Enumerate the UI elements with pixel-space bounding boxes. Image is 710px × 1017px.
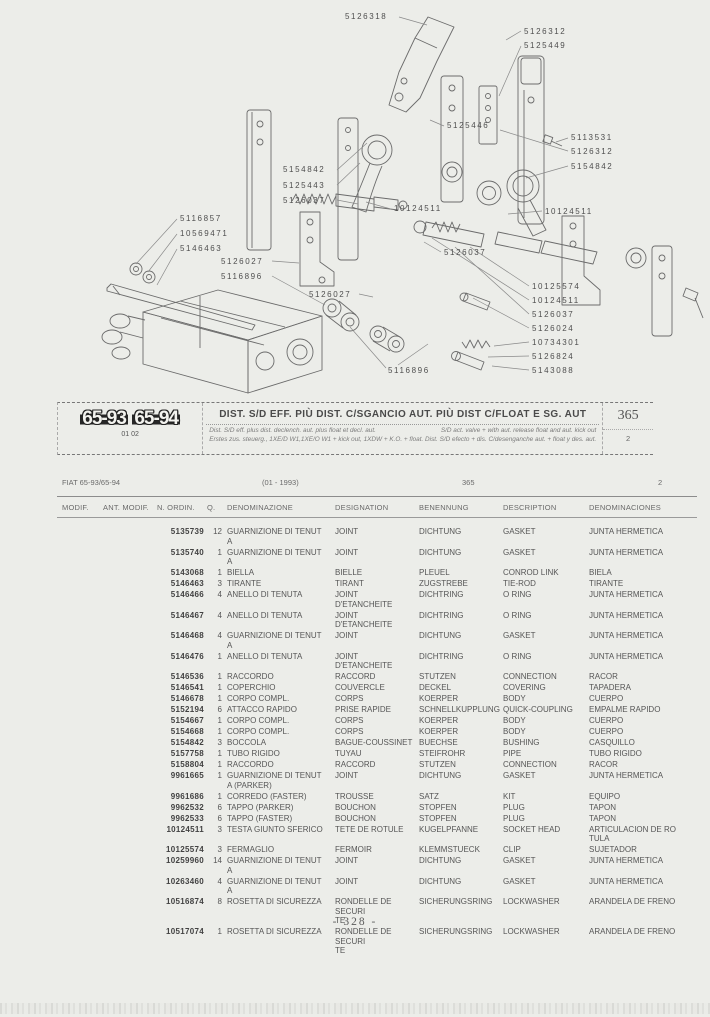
cell-denominaciones: JUNTA HERMETICA (589, 631, 686, 650)
parts-table-header: MODIF.ANT. MODIF.N. ORDIN.Q.DENOMINAZION… (62, 503, 686, 512)
part-number-label: 5146463 (180, 244, 222, 253)
cell-denominaciones: JUNTA HERMETICA (589, 652, 686, 671)
cell-quantity: 3 (207, 845, 227, 855)
column-header: DENOMINACIONES (589, 503, 686, 512)
cell-description: GASKET (503, 631, 589, 650)
cell-denominaciones: BIELA (589, 568, 686, 578)
cell-quantity: 1 (207, 727, 227, 737)
cell-modif (62, 814, 103, 824)
cell-benennung: PLEUEL (419, 568, 503, 578)
part-number-label: 5126824 (532, 352, 574, 361)
model-badge-65-94: 65-94 (132, 408, 180, 430)
cell-quantity: 1 (207, 927, 227, 956)
cell-quantity: 1 (207, 760, 227, 770)
cell-benennung: KUGELPFANNE (419, 825, 503, 844)
horizontal-rule-under-header (57, 517, 697, 518)
cell-description: BODY (503, 727, 589, 737)
cell-modif (62, 631, 103, 650)
cell-designation: RONDELLE DE SECURI TE (335, 927, 419, 956)
cell-ant-modif (103, 705, 157, 715)
cell-denominazione: TAPPO (FASTER) (227, 814, 335, 824)
cell-denominazione: FERMAGLIO (227, 845, 335, 855)
cell-ant-modif (103, 652, 157, 671)
badge-subtext: 01 02 (58, 431, 202, 438)
cell-part-number: 10125574 (157, 845, 207, 855)
cell-modif (62, 927, 103, 956)
cell-denominaciones: JUNTA HERMETICA (589, 877, 686, 896)
cell-denominaciones: TIRANTE (589, 579, 686, 589)
cell-designation: BAGUE-COUSSINET (335, 738, 419, 748)
table-row: 5154667 1 CORPO COMPL. CORPS KOERPER BOD… (62, 716, 686, 726)
cell-designation: JOINT D'ETANCHEITE (335, 611, 419, 630)
table-row: 5152194 6 ATTACCO RAPIDO PRISE RAPIDE SC… (62, 705, 686, 715)
page-number: - 328 - (0, 916, 710, 928)
cell-denominaciones: TUBO RIGIDO (589, 749, 686, 759)
cell-part-number: 5152194 (157, 705, 207, 715)
model-badges-cell: 65-93 65-94 01 02 (58, 403, 203, 454)
cell-benennung: BUECHSE (419, 738, 503, 748)
cell-quantity: 6 (207, 803, 227, 813)
cell-part-number: 10259960 (157, 856, 207, 875)
cell-benennung: DICHTUNG (419, 631, 503, 650)
cell-ant-modif (103, 548, 157, 567)
cell-denominazione: CORREDO (FASTER) (227, 792, 335, 802)
cell-designation: RACCORD (335, 672, 419, 682)
cell-benennung: STUTZEN (419, 672, 503, 682)
column-header: DESIGNATION (335, 503, 419, 512)
subtitle-english: S/D act. valve + with aut. release float… (441, 427, 596, 434)
cell-description: TIE-ROD (503, 579, 589, 589)
cell-modif (62, 611, 103, 630)
cell-modif (62, 672, 103, 682)
cell-designation: BIELLE (335, 568, 419, 578)
section-header-band: 65-93 65-94 01 02 DIST. S/D EFF. PIÙ DIS… (57, 402, 653, 455)
cell-part-number: 5146476 (157, 652, 207, 671)
cell-designation: CORPS (335, 716, 419, 726)
cell-ant-modif (103, 760, 157, 770)
cell-part-number: 5154668 (157, 727, 207, 737)
cell-denominaciones: TAPADERA (589, 683, 686, 693)
cell-designation: RACCORD (335, 760, 419, 770)
cell-modif (62, 705, 103, 715)
cell-denominazione: ANELLO DI TENUTA (227, 590, 335, 609)
table-row: 5157758 1 TUBO RIGIDO TUYAU STEIFROHR PI… (62, 749, 686, 759)
cell-quantity: 1 (207, 771, 227, 790)
part-number-label: 5126037 (283, 196, 325, 205)
cell-denominazione: ANELLO DI TENUTA (227, 611, 335, 630)
cell-part-number: 9962533 (157, 814, 207, 824)
cell-part-number: 5157758 (157, 749, 207, 759)
cell-denominazione: CORPO COMPL. (227, 694, 335, 704)
cell-benennung: DICHTRING (419, 611, 503, 630)
cell-benennung: KOERPER (419, 716, 503, 726)
cell-modif (62, 590, 103, 609)
cell-benennung: KOERPER (419, 694, 503, 704)
table-row: 9962532 6 TAPPO (PARKER) BOUCHON STOPFEN… (62, 803, 686, 813)
table-row: 10125574 3 FERMAGLIO FERMOIR KLEMMSTUECK… (62, 845, 686, 855)
cell-denominaciones: CASQUILLO (589, 738, 686, 748)
cell-part-number: 5146467 (157, 611, 207, 630)
cell-benennung: DICHTUNG (419, 548, 503, 567)
page-ref-cell: 365 2 (602, 403, 653, 454)
part-number-label: 5125443 (283, 181, 325, 190)
cell-denominazione: GUARNIZIONE DI TENUT A (227, 877, 335, 896)
cell-denominaciones: CUERPO (589, 727, 686, 737)
sheet-number: 2 (603, 429, 653, 443)
cell-modif (62, 771, 103, 790)
date-reference: (01 - 1993) (262, 478, 299, 487)
cell-designation: BOUCHON (335, 803, 419, 813)
cell-part-number: 5146678 (157, 694, 207, 704)
cell-denominazione: GUARNIZIONE DI TENUT A (227, 527, 335, 546)
cell-quantity: 3 (207, 579, 227, 589)
cell-denominazione: TUBO RIGIDO (227, 749, 335, 759)
cell-denominazione: GUARNIZIONE DI TENUT A (PARKER) (227, 771, 335, 790)
cell-denominaciones: SUJETADOR (589, 845, 686, 855)
cell-quantity: 1 (207, 683, 227, 693)
cell-denominazione: CORPO COMPL. (227, 727, 335, 737)
cell-modif (62, 683, 103, 693)
cell-denominazione: COPERCHIO (227, 683, 335, 693)
part-number-label: 5125446 (447, 121, 489, 130)
cell-designation: JOINT (335, 527, 419, 546)
table-row: 5154842 3 BOCCOLA BAGUE-COUSSINET BUECHS… (62, 738, 686, 748)
table-row: 5146467 4 ANELLO DI TENUTA JOINT D'ETANC… (62, 611, 686, 630)
column-header: Q. (207, 503, 227, 512)
cell-denominazione: GUARNIZIONE DI TENUT A (227, 548, 335, 567)
column-header: MODIF. (62, 503, 103, 512)
cell-modif (62, 579, 103, 589)
cell-denominaciones: JUNTA HERMETICA (589, 611, 686, 630)
cell-denominazione: TESTA GIUNTO SFERICO (227, 825, 335, 844)
model-reference: FIAT 65-93/65-94 (62, 478, 120, 487)
table-row: 9962533 6 TAPPO (FASTER) BOUCHON STOPFEN… (62, 814, 686, 824)
cell-benennung: DICHTRING (419, 590, 503, 609)
cell-modif (62, 694, 103, 704)
part-number-label: 5154842 (571, 162, 613, 171)
cell-designation: COUVERCLE (335, 683, 419, 693)
cell-description: QUICK-COUPLING (503, 705, 589, 715)
cell-benennung: SICHERUNGSRING (419, 927, 503, 956)
cell-quantity: 1 (207, 652, 227, 671)
cell-denominaciones: ARANDELA DE FRENO (589, 927, 686, 956)
cell-ant-modif (103, 683, 157, 693)
cell-modif (62, 738, 103, 748)
diagram-drawing (0, 0, 710, 400)
cell-designation: TIRANT (335, 579, 419, 589)
cell-ant-modif (103, 825, 157, 844)
cell-modif (62, 825, 103, 844)
cell-quantity: 6 (207, 814, 227, 824)
part-number-label: 10124511 (545, 207, 593, 216)
cell-designation: JOINT (335, 631, 419, 650)
table-row: 10259960 14 GUARNIZIONE DI TENUT A JOINT… (62, 856, 686, 875)
model-badge-65-93: 65-93 (80, 408, 128, 430)
cell-denominaciones: JUNTA HERMETICA (589, 590, 686, 609)
part-number-label: 5126318 (345, 12, 387, 21)
cell-ant-modif (103, 845, 157, 855)
exploded-parts-diagram: 5126318512631251254495125446511353151263… (0, 0, 710, 400)
cell-denominaciones: EMPALME RAPIDO (589, 705, 686, 715)
cell-part-number: 5154842 (157, 738, 207, 748)
cell-ant-modif (103, 590, 157, 609)
model-badges: 65-93 65-94 (58, 408, 202, 430)
cell-benennung: ZUGSTREBE (419, 579, 503, 589)
part-number-label: 5125449 (524, 41, 566, 50)
cell-benennung: DICHTUNG (419, 527, 503, 546)
cell-description: COVERING (503, 683, 589, 693)
cell-ant-modif (103, 803, 157, 813)
cell-description: O RING (503, 611, 589, 630)
cell-ant-modif (103, 727, 157, 737)
cell-denominazione: GUARNIZIONE DI TENUT A (227, 856, 335, 875)
cell-description: GASKET (503, 527, 589, 546)
cell-ant-modif (103, 579, 157, 589)
cell-part-number: 5146536 (157, 672, 207, 682)
cell-modif (62, 568, 103, 578)
cell-part-number: 9961686 (157, 792, 207, 802)
cell-description: CLIP (503, 845, 589, 855)
cell-ant-modif (103, 611, 157, 630)
cell-ant-modif (103, 856, 157, 875)
cell-ant-modif (103, 672, 157, 682)
cell-description: GASKET (503, 548, 589, 567)
cell-description: PLUG (503, 803, 589, 813)
cell-benennung: DICHTUNG (419, 856, 503, 875)
cell-benennung: KLEMMSTUECK (419, 845, 503, 855)
cell-part-number: 10124511 (157, 825, 207, 844)
part-number-label: 5126037 (532, 310, 574, 319)
part-number-label: 10124511 (394, 204, 442, 213)
cell-part-number: 5154667 (157, 716, 207, 726)
table-row: 9961665 1 GUARNIZIONE DI TENUT A (PARKER… (62, 771, 686, 790)
cell-quantity: 3 (207, 738, 227, 748)
cell-denominazione: RACCORDO (227, 760, 335, 770)
cell-description: CONNECTION (503, 760, 589, 770)
cell-ant-modif (103, 771, 157, 790)
table-row: 5146463 3 TIRANTE TIRANT ZUGSTREBE TIE-R… (62, 579, 686, 589)
cell-denominaciones: ARTICULACION DE RO TULA (589, 825, 686, 844)
part-number-label: 5154842 (283, 165, 325, 174)
table-row: 10124511 3 TESTA GIUNTO SFERICO TETE DE … (62, 825, 686, 844)
cell-description: LOCKWASHER (503, 927, 589, 956)
cell-denominaciones: TAPON (589, 803, 686, 813)
cell-description: GASKET (503, 771, 589, 790)
cell-designation: CORPS (335, 727, 419, 737)
catalog-page: 5126318512631251254495125446511353151263… (0, 0, 710, 1017)
cell-quantity: 6 (207, 705, 227, 715)
cell-part-number: 9961665 (157, 771, 207, 790)
cell-denominaciones: JUNTA HERMETICA (589, 771, 686, 790)
cell-designation: JOINT D'ETANCHEITE (335, 590, 419, 609)
cell-description: GASKET (503, 877, 589, 896)
table-row: 5146468 4 GUARNIZIONE DI TENUT A JOINT D… (62, 631, 686, 650)
part-number-label: 5126037 (444, 248, 486, 257)
cell-part-number: 9962532 (157, 803, 207, 813)
cell-quantity: 1 (207, 568, 227, 578)
table-row: 5135739 12 GUARNIZIONE DI TENUT A JOINT … (62, 527, 686, 546)
cell-part-number: 5146466 (157, 590, 207, 609)
table-row: 5158804 1 RACCORDO RACCORD STUTZEN CONNE… (62, 760, 686, 770)
table-row: 5135740 1 GUARNIZIONE DI TENUT A JOINT D… (62, 548, 686, 567)
cell-benennung: DECKEL (419, 683, 503, 693)
part-number-label: 5113531 (571, 133, 613, 142)
cell-modif (62, 652, 103, 671)
cell-designation: BOUCHON (335, 814, 419, 824)
cell-ant-modif (103, 749, 157, 759)
cell-designation: JOINT (335, 548, 419, 567)
cell-quantity: 1 (207, 716, 227, 726)
table-row: 5146536 1 RACCORDO RACCORD STUTZEN CONNE… (62, 672, 686, 682)
cell-denominaciones: TAPON (589, 814, 686, 824)
cell-description: CONNECTION (503, 672, 589, 682)
cell-denominaciones: RACOR (589, 760, 686, 770)
table-row: 5154668 1 CORPO COMPL. CORPS KOERPER BOD… (62, 727, 686, 737)
cell-part-number: 10517074 (157, 927, 207, 956)
cell-description: O RING (503, 652, 589, 671)
table-sheet-ref: 2 (658, 478, 662, 487)
cell-benennung: DICHTUNG (419, 771, 503, 790)
part-number-label: 10124511 (532, 296, 580, 305)
cell-modif (62, 527, 103, 546)
cell-benennung: DICHTUNG (419, 877, 503, 896)
cell-modif (62, 803, 103, 813)
table-page-ref: 365 (462, 478, 475, 487)
part-number-label: 5116857 (180, 214, 222, 223)
table-row: 10517074 1 ROSETTA DI SICUREZZA RONDELLE… (62, 927, 686, 956)
cell-modif (62, 877, 103, 896)
cell-quantity: 1 (207, 672, 227, 682)
cell-part-number: 5146468 (157, 631, 207, 650)
subtitle-german-spanish: Erstes zus. steuerg., 1XE/D W1,1XE/O W1 … (209, 436, 596, 443)
cell-denominazione: GUARNIZIONE DI TENUT A (227, 631, 335, 650)
cell-benennung: KOERPER (419, 727, 503, 737)
cell-designation: CORPS (335, 694, 419, 704)
cell-ant-modif (103, 738, 157, 748)
section-title-cell: DIST. S/D EFF. PIÙ DIST. C/SGANCIO AUT. … (203, 403, 602, 454)
cell-description: BODY (503, 694, 589, 704)
cell-modif (62, 749, 103, 759)
cell-designation: FERMOIR (335, 845, 419, 855)
cell-ant-modif (103, 694, 157, 704)
cell-modif (62, 716, 103, 726)
cell-description: PLUG (503, 814, 589, 824)
cell-description: SOCKET HEAD (503, 825, 589, 844)
cell-quantity: 12 (207, 527, 227, 546)
cell-quantity: 4 (207, 877, 227, 896)
part-number-label: 5116896 (221, 272, 263, 281)
cell-ant-modif (103, 877, 157, 896)
section-title: DIST. S/D EFF. PIÙ DIST. C/SGANCIO AUT. … (203, 409, 602, 420)
cell-benennung: DICHTRING (419, 652, 503, 671)
cell-quantity: 4 (207, 631, 227, 650)
cell-ant-modif (103, 814, 157, 824)
cell-ant-modif (103, 792, 157, 802)
cell-ant-modif (103, 716, 157, 726)
cell-ant-modif (103, 527, 157, 546)
cell-part-number: 5143068 (157, 568, 207, 578)
cell-denominazione: TAPPO (PARKER) (227, 803, 335, 813)
column-header: N. ORDIN. (157, 503, 207, 512)
cell-quantity: 1 (207, 548, 227, 567)
horizontal-rule-top (57, 496, 697, 497)
cell-modif (62, 727, 103, 737)
cell-quantity: 4 (207, 611, 227, 630)
cell-denominazione: RACCORDO (227, 672, 335, 682)
table-row: 5146466 4 ANELLO DI TENUTA JOINT D'ETANC… (62, 590, 686, 609)
cell-description: PIPE (503, 749, 589, 759)
parts-table-body: 5135739 12 GUARNIZIONE DI TENUT A JOINT … (62, 527, 686, 957)
column-header: DENOMINAZIONE (227, 503, 335, 512)
cell-denominazione: TIRANTE (227, 579, 335, 589)
cell-modif (62, 760, 103, 770)
cell-ant-modif (103, 568, 157, 578)
table-row: 5146476 1 ANELLO DI TENUTA JOINT D'ETANC… (62, 652, 686, 671)
cell-denominazione: ANELLO DI TENUTA (227, 652, 335, 671)
cell-denominaciones: EQUIPO (589, 792, 686, 802)
cell-description: GASKET (503, 856, 589, 875)
cell-denominazione: CORPO COMPL. (227, 716, 335, 726)
cell-quantity: 1 (207, 694, 227, 704)
cell-benennung: STOPFEN (419, 814, 503, 824)
table-row: 5146541 1 COPERCHIO COUVERCLE DECKEL COV… (62, 683, 686, 693)
cell-part-number: 5146541 (157, 683, 207, 693)
cell-designation: TROUSSE (335, 792, 419, 802)
cell-part-number: 10263460 (157, 877, 207, 896)
cell-description: BODY (503, 716, 589, 726)
part-number-label: 5126312 (571, 147, 613, 156)
cell-denominaciones: JUNTA HERMETICA (589, 548, 686, 567)
cell-quantity: 14 (207, 856, 227, 875)
column-header: DESCRIPTION (503, 503, 589, 512)
cell-designation: JOINT D'ETANCHEITE (335, 652, 419, 671)
cell-benennung: STEIFROHR (419, 749, 503, 759)
cell-designation: TUYAU (335, 749, 419, 759)
cell-part-number: 5135740 (157, 548, 207, 567)
part-number-label: 5143088 (532, 366, 574, 375)
cell-modif (62, 548, 103, 567)
cell-modif (62, 792, 103, 802)
part-number-label: 5126027 (221, 257, 263, 266)
cell-ant-modif (103, 631, 157, 650)
cell-designation: JOINT (335, 856, 419, 875)
cell-denominazione: ATTACCO RAPIDO (227, 705, 335, 715)
cell-quantity: 1 (207, 792, 227, 802)
cell-description: BUSHING (503, 738, 589, 748)
cell-quantity: 1 (207, 749, 227, 759)
cell-denominaciones: RACOR (589, 672, 686, 682)
cell-part-number: 5146463 (157, 579, 207, 589)
cell-ant-modif (103, 927, 157, 956)
part-number-label: 5116896 (388, 366, 430, 375)
subtitle-french: Dist. S/D eff. plus dist. declench. aut.… (209, 427, 376, 434)
cell-designation: TETE DE ROTULE (335, 825, 419, 844)
section-subtitles: Dist. S/D eff. plus dist. declench. aut.… (206, 424, 599, 443)
cell-quantity: 3 (207, 825, 227, 844)
cell-part-number: 5158804 (157, 760, 207, 770)
page-ref-number: 365 (603, 403, 653, 424)
cell-benennung: SCHNELLKUPPLUNG (419, 705, 503, 715)
cell-modif (62, 845, 103, 855)
cell-modif (62, 856, 103, 875)
cell-description: KIT (503, 792, 589, 802)
leader-lines (136, 17, 568, 370)
scan-noise-band (0, 1003, 710, 1014)
table-meta-row: FIAT 65-93/65-94 (01 - 1993) 365 2 (0, 478, 710, 490)
cell-denominazione: ROSETTA DI SICUREZZA (227, 927, 335, 956)
table-row: 5143068 1 BIELLA BIELLE PLEUEL CONROD LI… (62, 568, 686, 578)
part-number-label: 10569471 (180, 229, 228, 238)
